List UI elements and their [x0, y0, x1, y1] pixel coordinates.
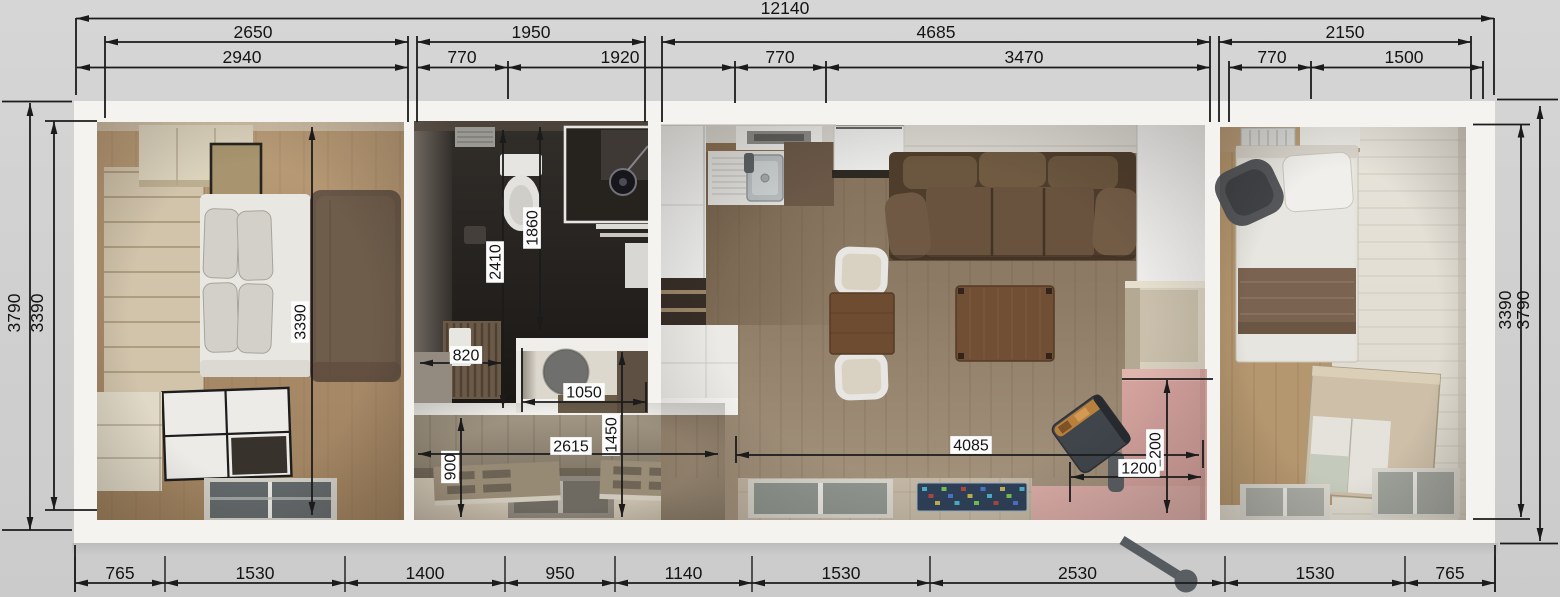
svg-text:765: 765 — [1435, 563, 1464, 583]
svg-text:3790: 3790 — [1513, 290, 1533, 329]
svg-text:1530: 1530 — [822, 563, 861, 583]
svg-text:1530: 1530 — [1296, 563, 1335, 583]
svg-text:1400: 1400 — [406, 563, 445, 583]
svg-text:765: 765 — [105, 563, 134, 583]
svg-text:950: 950 — [545, 563, 574, 583]
svg-text:770: 770 — [1257, 47, 1286, 67]
svg-text:2410: 2410 — [487, 244, 504, 280]
svg-text:3390: 3390 — [27, 293, 47, 332]
svg-text:1950: 1950 — [512, 22, 551, 42]
svg-text:1860: 1860 — [524, 210, 541, 246]
svg-text:2615: 2615 — [553, 438, 589, 455]
svg-text:820: 820 — [453, 347, 480, 364]
svg-text:2650: 2650 — [234, 22, 273, 42]
svg-text:3470: 3470 — [1005, 47, 1044, 67]
svg-text:4085: 4085 — [953, 437, 989, 454]
svg-text:2530: 2530 — [1058, 563, 1097, 583]
svg-text:1500: 1500 — [1385, 47, 1424, 67]
svg-text:1140: 1140 — [665, 563, 703, 583]
svg-text:2940: 2940 — [223, 47, 262, 67]
svg-text:1920: 1920 — [601, 47, 640, 67]
svg-text:900: 900 — [442, 454, 459, 481]
svg-text:3390: 3390 — [292, 304, 309, 340]
svg-text:770: 770 — [447, 47, 476, 67]
svg-text:4685: 4685 — [917, 22, 956, 42]
svg-text:2150: 2150 — [1326, 22, 1365, 42]
svg-text:1530: 1530 — [236, 563, 275, 583]
svg-text:770: 770 — [765, 47, 794, 67]
svg-text:3790: 3790 — [4, 293, 24, 332]
svg-text:1050: 1050 — [566, 384, 602, 401]
svg-text:1450: 1450 — [603, 417, 620, 453]
svg-text:3390: 3390 — [1495, 290, 1515, 329]
svg-text:12140: 12140 — [761, 0, 810, 18]
svg-text:1200: 1200 — [1121, 460, 1157, 477]
